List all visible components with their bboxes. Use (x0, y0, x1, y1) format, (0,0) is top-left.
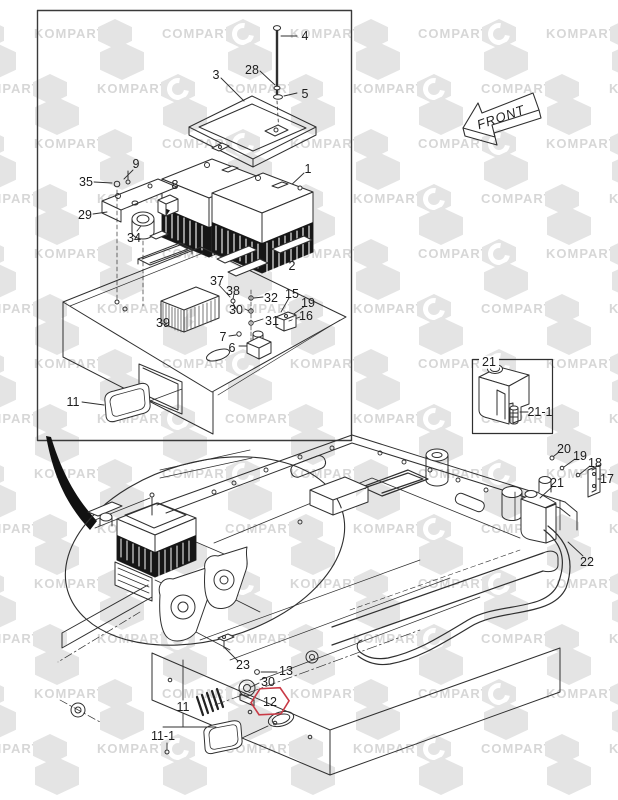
part-callout-21-1: 21-1 (527, 406, 552, 419)
part-callout-2: 2 (289, 260, 296, 273)
part-number: 39 (156, 316, 170, 330)
part-number: 16 (299, 309, 313, 323)
part-number: 35 (79, 175, 93, 189)
part-number: 37 (210, 274, 224, 288)
part-callout-19-upper: 19 (301, 297, 315, 310)
part-number: 19 (301, 296, 315, 310)
part-number: 30 (261, 675, 275, 689)
part-callout-16: 16 (299, 310, 313, 323)
part-callout-9: 9 (133, 158, 140, 171)
part-number: 30 (229, 303, 243, 317)
part-callout-11-box: 11 (67, 396, 80, 409)
part-number: 28 (245, 63, 259, 77)
part-number: 18 (588, 456, 602, 470)
part-number: 19 (573, 449, 587, 463)
part-callout-32: 32 (264, 292, 278, 305)
part-number: 9 (133, 157, 140, 171)
part-number: 20 (557, 442, 571, 456)
part-number: 23 (236, 658, 250, 672)
part-callout-30-upper: 30 (229, 304, 243, 317)
part-callout-12: 12 (263, 696, 277, 709)
part-callout-13: 13 (279, 665, 293, 678)
part-number: 3 (213, 68, 220, 82)
part-number: 6 (229, 341, 236, 355)
part-callout-34: 34 (127, 232, 141, 245)
part-callout-31: 31 (265, 315, 279, 328)
part-callout-21-inset: 21 (479, 356, 499, 369)
part-callout-28: 28 (245, 64, 259, 77)
part-number: 38 (226, 284, 240, 298)
part-callout-5: 5 (302, 88, 309, 101)
part-callout-11-1: 11-1 (151, 730, 175, 743)
parts-diagram-page: KOMPARTCOMPARTKOMPARTCOMPARTKOMPARTCOMPA… (0, 0, 618, 800)
part-callout-21-frame: 21 (550, 477, 564, 490)
part-number: 15 (285, 287, 299, 301)
part-callout-3: 3 (213, 69, 220, 82)
part-callout-8: 8 (172, 179, 179, 192)
part-number: 32 (264, 291, 278, 305)
part-callout-6: 6 (229, 342, 236, 355)
part-callout-17: 17 (600, 473, 614, 486)
part-number: 8 (172, 178, 179, 192)
part-number: 13 (279, 664, 293, 678)
part-number: 31 (265, 314, 279, 328)
part-number: 11 (67, 395, 80, 409)
part-callout-30-frame: 30 (261, 676, 275, 689)
part-number: 21 (482, 355, 496, 369)
part-number: 34 (127, 231, 141, 245)
part-callout-37: 37 (210, 275, 224, 288)
part-number: 21-1 (527, 405, 552, 419)
part-callout-4: 4 (302, 30, 309, 43)
part-callout-39: 39 (156, 317, 170, 330)
part-callout-19-frame: 19 (573, 450, 587, 463)
part-callout-22: 22 (580, 556, 594, 569)
part-callout-23: 23 (236, 659, 250, 672)
part-callout-20: 20 (557, 443, 571, 456)
part-number: 4 (302, 29, 309, 43)
part-callout-38: 38 (226, 285, 240, 298)
callouts-layer: 4285319358293423738321519303116763911212… (0, 0, 618, 800)
part-number: 11 (177, 700, 190, 714)
part-callout-35: 35 (79, 176, 93, 189)
part-callout-29: 29 (78, 209, 92, 222)
part-number: 21 (550, 476, 564, 490)
part-number: 7 (220, 330, 227, 344)
part-callout-15: 15 (285, 288, 299, 301)
part-number: 2 (289, 259, 296, 273)
part-number: 5 (302, 87, 309, 101)
part-number: 1 (305, 162, 312, 176)
part-number: 17 (600, 472, 614, 486)
part-callout-7: 7 (220, 331, 227, 344)
part-number: 29 (78, 208, 92, 222)
part-callout-11-frame: 11 (177, 701, 190, 714)
part-callout-1: 1 (305, 163, 312, 176)
part-number: 11-1 (151, 729, 175, 743)
part-number: 12 (263, 695, 277, 709)
part-number: 22 (580, 555, 594, 569)
part-callout-18: 18 (588, 457, 602, 470)
